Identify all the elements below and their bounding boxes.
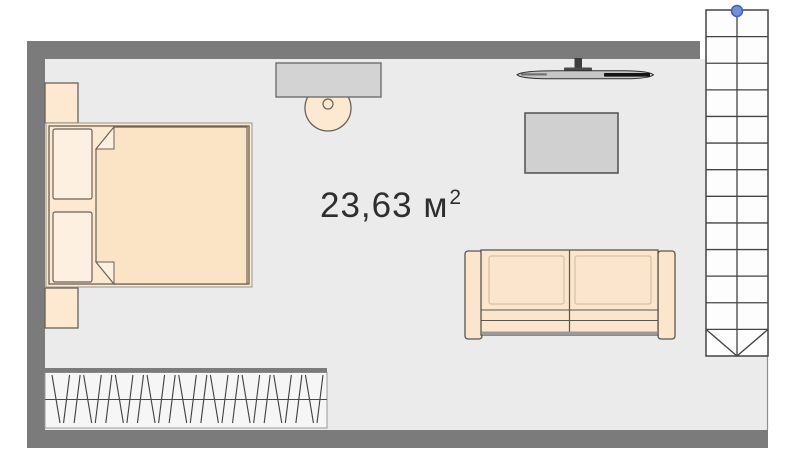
tv-panel-segment <box>604 73 650 77</box>
nightstand-bottom <box>45 288 78 328</box>
stool-center <box>323 99 333 109</box>
selection-handle[interactable] <box>732 6 743 17</box>
desk[interactable] <box>276 63 381 97</box>
room-area-label: 23,63 м2 <box>320 186 462 226</box>
bed-pillow-top <box>53 129 92 199</box>
wall-top <box>27 41 700 59</box>
bed-blanket <box>96 127 247 284</box>
sofa-armrest-right <box>658 251 675 339</box>
sofa[interactable] <box>465 250 675 339</box>
sofa-front-shadow <box>482 332 657 336</box>
area-superscript: 2 <box>449 186 462 209</box>
staircase[interactable] <box>706 10 768 356</box>
nightstand-top <box>45 83 78 123</box>
radiator[interactable] <box>45 368 327 428</box>
rug-table[interactable] <box>525 113 618 173</box>
floorplan-drawing <box>0 0 800 469</box>
area-value: 23,63 <box>320 186 413 225</box>
wall-bottom <box>27 430 768 448</box>
sofa-armrest-left <box>465 251 482 339</box>
floorplan-canvas: 23,63 м2 <box>0 0 800 469</box>
tv-mount-stem <box>575 58 583 69</box>
bed-pillow-bottom <box>53 212 92 282</box>
tv-panel-dash <box>521 73 547 75</box>
wall-left <box>27 41 45 448</box>
area-unit: м <box>413 186 449 225</box>
radiator-top-band <box>45 368 327 373</box>
